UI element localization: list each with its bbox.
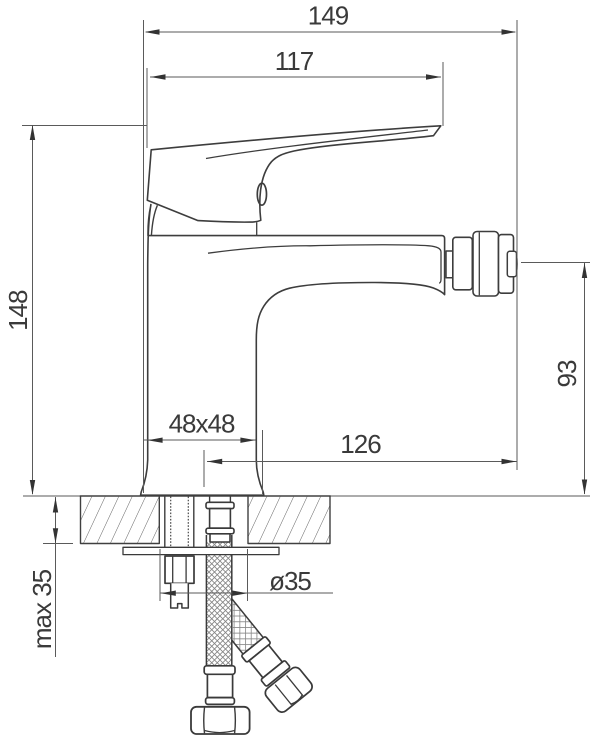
svg-text:117: 117 bbox=[275, 46, 314, 76]
svg-text:ø35: ø35 bbox=[269, 566, 311, 596]
svg-text:48x48: 48x48 bbox=[169, 409, 235, 439]
svg-text:93: 93 bbox=[552, 360, 582, 387]
svg-text:149: 149 bbox=[308, 1, 349, 31]
svg-text:148: 148 bbox=[3, 290, 33, 331]
svg-text:max 35: max 35 bbox=[27, 569, 57, 649]
svg-text:126: 126 bbox=[340, 429, 381, 459]
